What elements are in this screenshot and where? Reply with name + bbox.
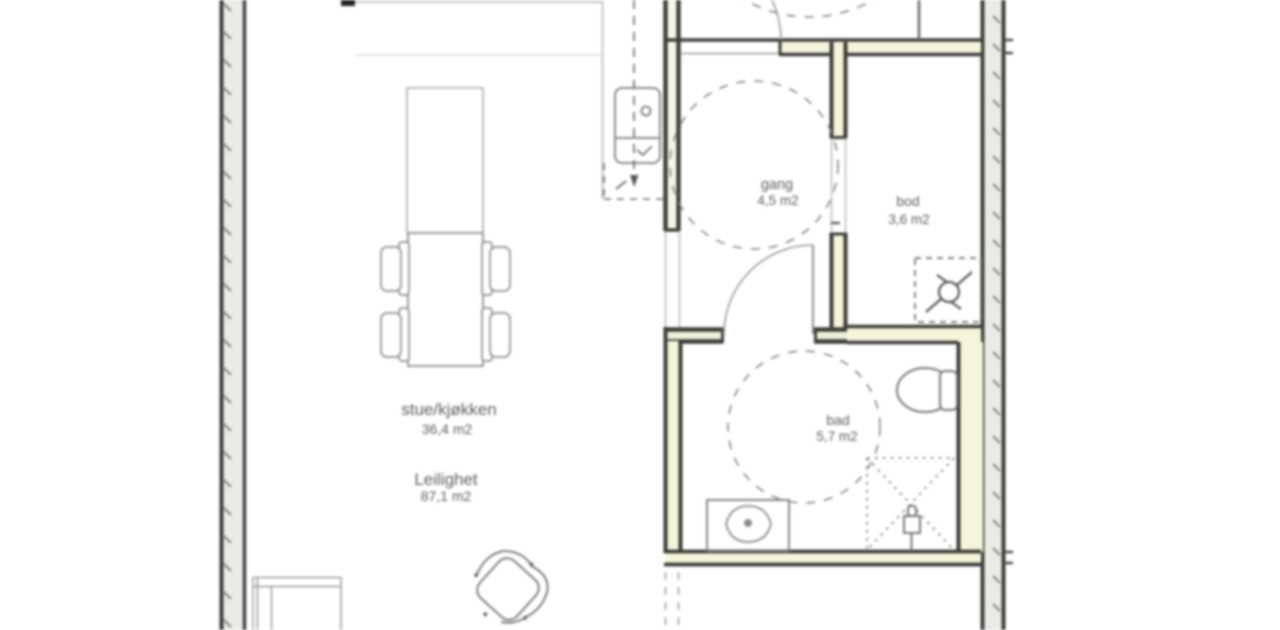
svg-text:3,6 m2: 3,6 m2: [888, 212, 929, 227]
svg-text:gang: gang: [761, 177, 793, 193]
svg-text:bod: bod: [896, 193, 919, 209]
svg-text:87,1 m2: 87,1 m2: [421, 488, 472, 504]
svg-text:Leilighet: Leilighet: [414, 470, 478, 489]
svg-text:36,4 m2: 36,4 m2: [422, 421, 473, 437]
svg-text:stue/kjøkken: stue/kjøkken: [401, 400, 496, 419]
svg-text:5,7 m2: 5,7 m2: [816, 429, 857, 444]
svg-text:bad: bad: [826, 412, 849, 428]
svg-text:4,5 m2: 4,5 m2: [757, 193, 798, 208]
